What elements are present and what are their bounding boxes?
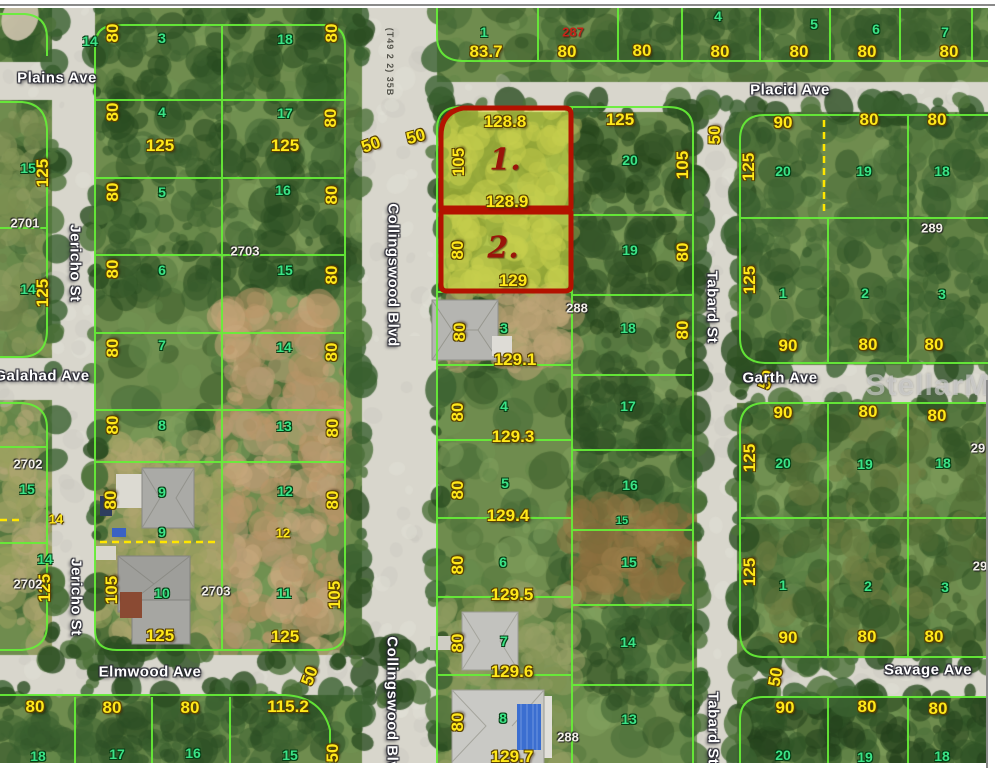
house-lot7-roof [430,612,518,670]
stellar-mls-watermark: StellarMLS [865,369,995,403]
house-lot10-roof [96,546,190,644]
house-lot3-roof [400,300,512,360]
subject-parcel-1[interactable] [441,108,571,208]
subject-parcel-2[interactable] [441,212,571,291]
aerial-plat-map: 8080808012512580808080808080808080121051… [0,0,995,768]
scan-line-right [986,380,988,768]
scan-margin-bottom [0,763,995,768]
house-lot8-roof [452,690,552,764]
scan-margin-right [988,0,995,768]
subject-parcels[interactable] [441,108,571,291]
scan-line-top [0,4,995,6]
parcel-lines-layer [0,0,995,768]
house-lot9-roof [100,468,194,537]
